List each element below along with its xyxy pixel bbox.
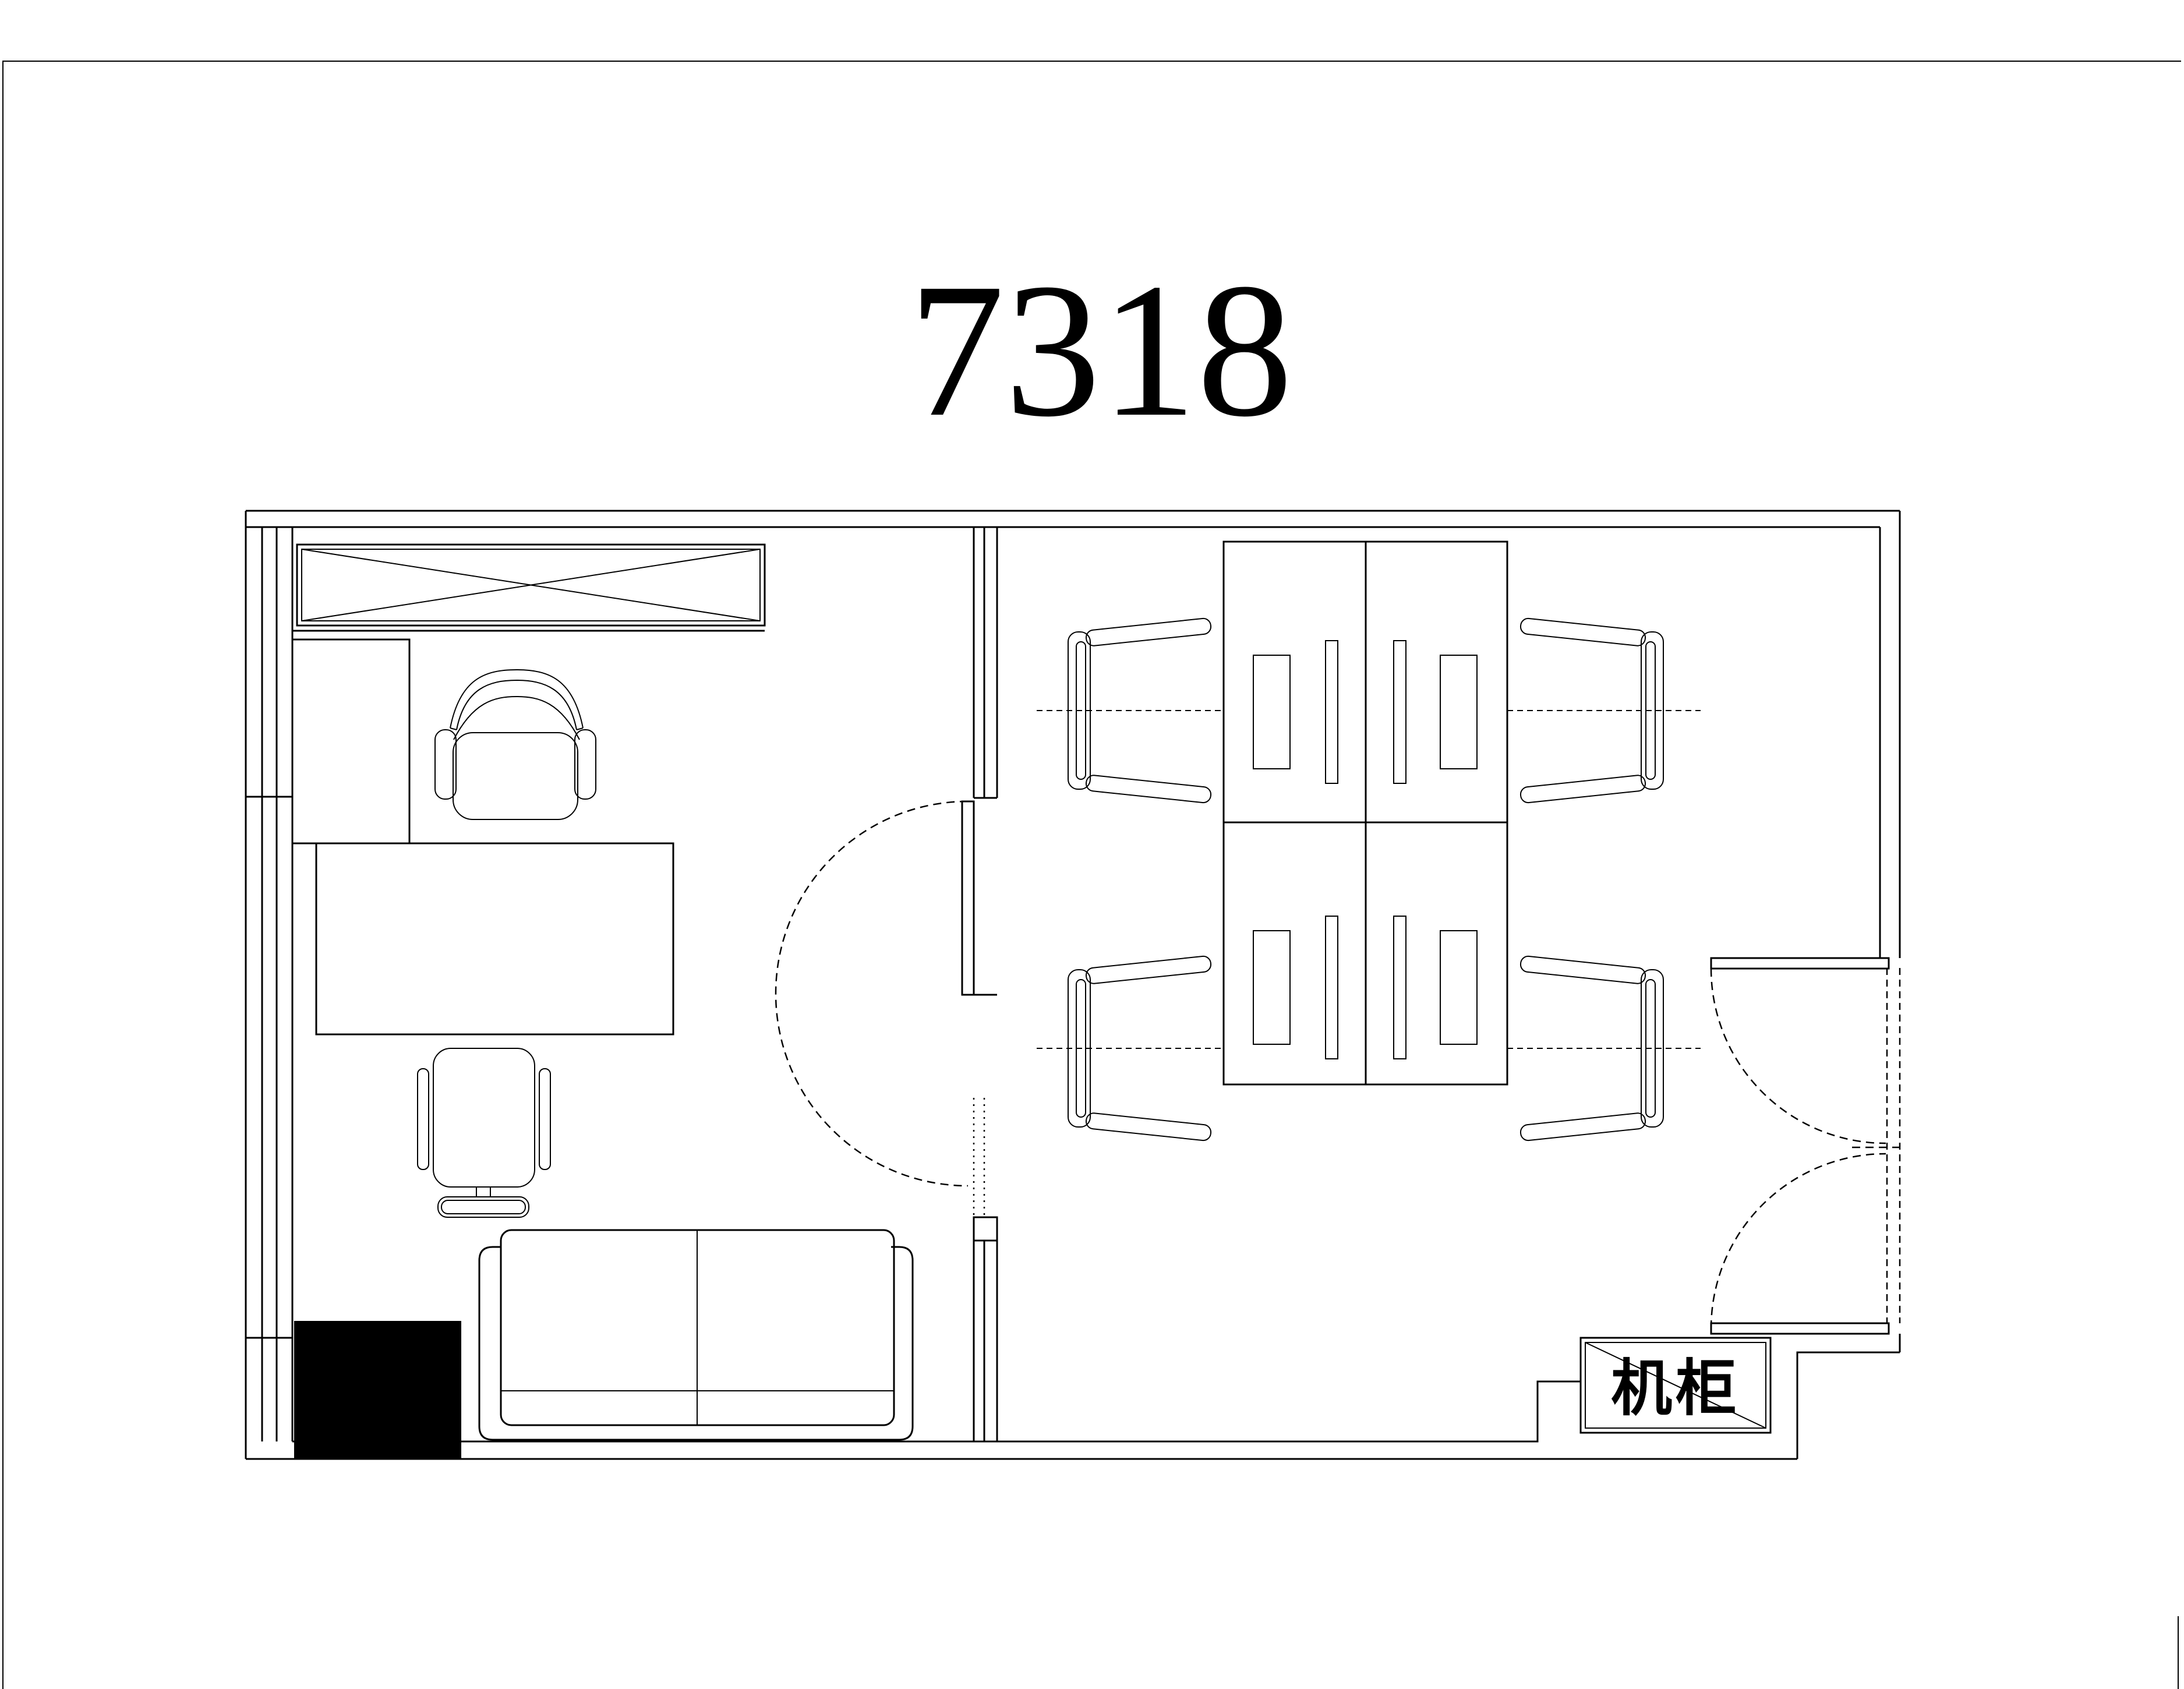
desk-monitor: [1253, 655, 1290, 769]
floor-plan-canvas: 7318: [0, 0, 2184, 1689]
guest-chair: [418, 1048, 550, 1217]
crossed-cabinet: [292, 545, 765, 631]
door-swing-arc: [776, 801, 968, 1186]
executive-desk: [316, 843, 673, 1034]
workstation-desks-2x2: [1224, 542, 1507, 1084]
desk-divider: [1394, 916, 1406, 1059]
door-swing-arc-bottom: [1711, 1154, 1886, 1328]
structural-column: [294, 1321, 461, 1459]
desk-monitor: [1253, 931, 1290, 1044]
desk-centerlines: [1037, 711, 1701, 1048]
armrest-left: [418, 1069, 429, 1169]
server-cabinet-box: 机柜: [1581, 1338, 1770, 1433]
desk-monitor: [1440, 931, 1477, 1044]
partition-wall: [974, 527, 997, 1441]
armrest-right: [539, 1069, 550, 1169]
single-swing-door: [776, 801, 997, 1186]
window-wall-left: [246, 511, 292, 1459]
plan-title: 7318: [909, 244, 1293, 457]
desk-return-panel: [292, 639, 409, 843]
server-cabinet-label: 机柜: [1611, 1353, 1740, 1424]
seat: [433, 1048, 535, 1187]
double-entry-door: [1711, 958, 1900, 1334]
door-leaf-top: [1711, 958, 1889, 969]
two-seat-sofa: [479, 1230, 913, 1440]
desk-divider: [1326, 916, 1338, 1059]
door-swing-arc-top: [1711, 969, 1886, 1143]
chair-stem: [476, 1187, 490, 1197]
drawing-sheet: 7318: [0, 0, 2184, 1689]
seat: [453, 733, 578, 819]
executive-chair: [435, 670, 596, 819]
desk-divider: [1394, 641, 1406, 783]
desk-monitor: [1440, 655, 1477, 769]
exterior-walls: [246, 511, 1900, 1459]
door-leaf: [962, 801, 974, 995]
door-leaf-bottom: [1711, 1323, 1889, 1334]
desk-divider: [1326, 641, 1338, 783]
